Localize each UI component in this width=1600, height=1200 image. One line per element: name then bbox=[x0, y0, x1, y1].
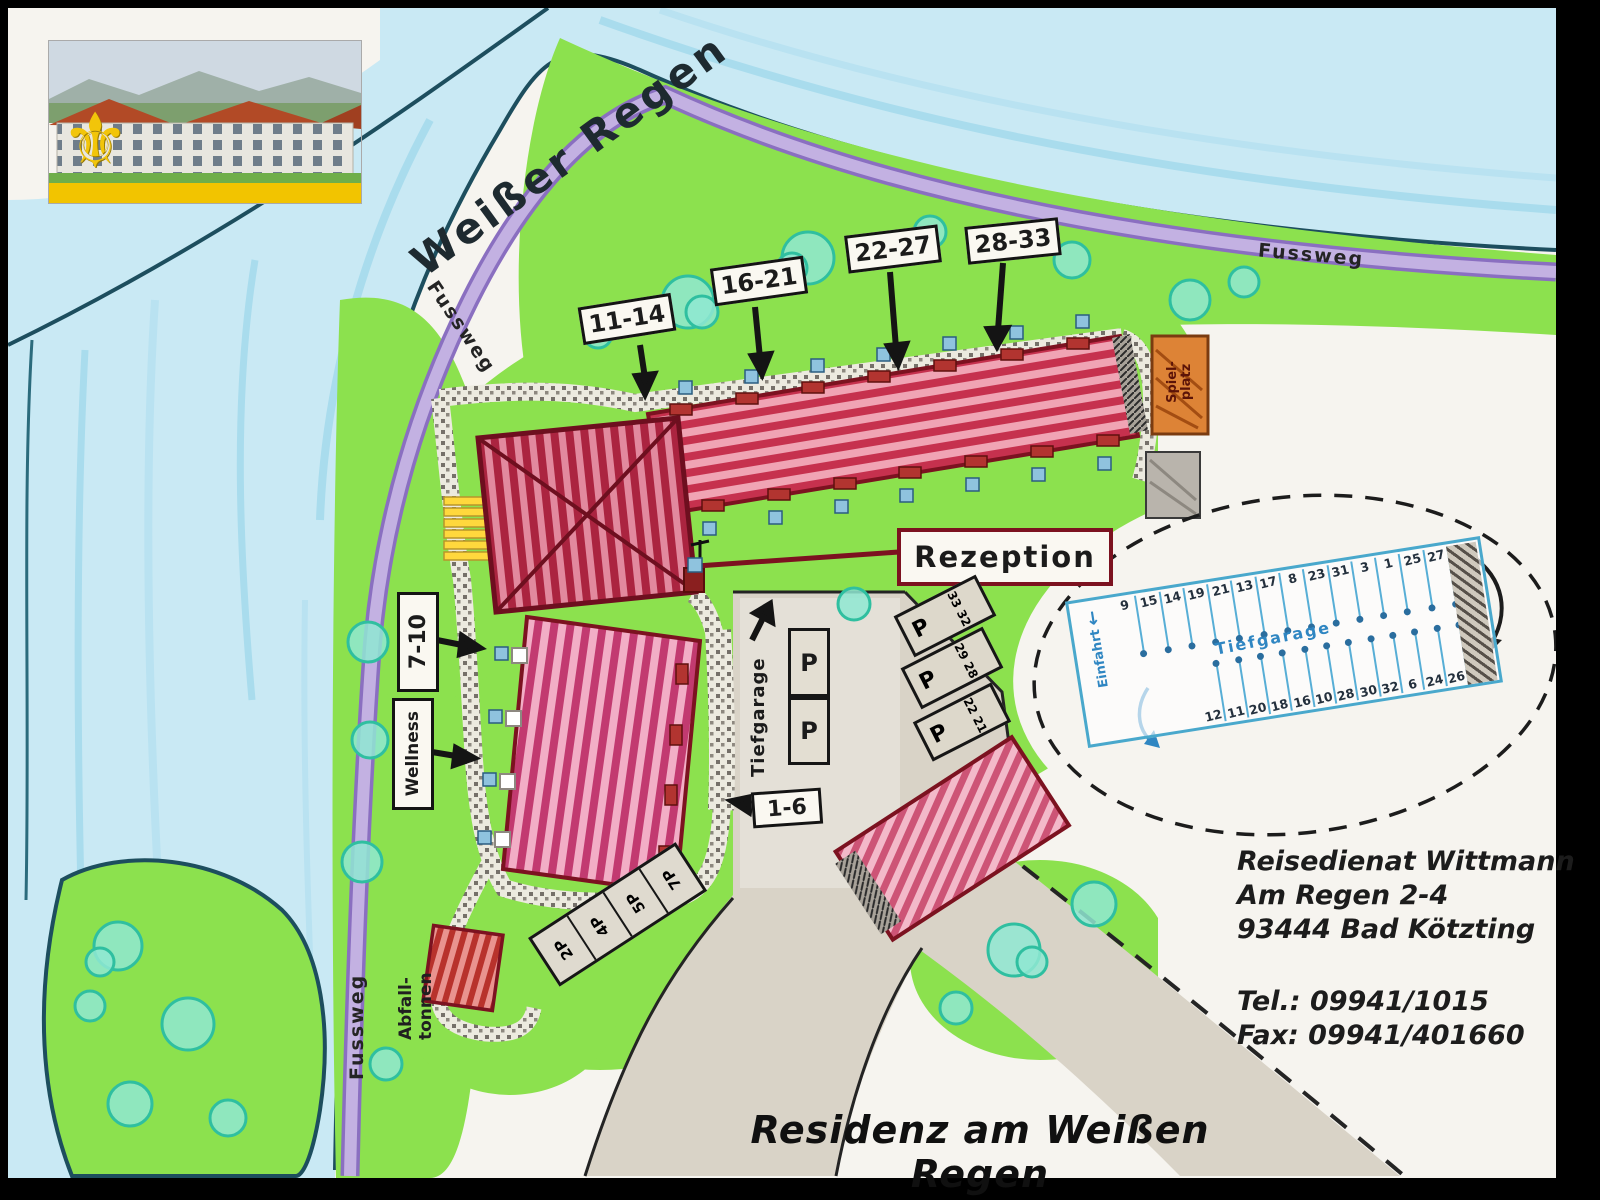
contact-fax: Fax: 09941/401660 bbox=[1237, 1019, 1575, 1053]
sign-wellness: Wellness bbox=[392, 698, 434, 810]
terrace-rect bbox=[1146, 452, 1200, 518]
outdoor-parking-1-nums: 33 32 bbox=[945, 589, 973, 628]
waste-bins-label: Abfall- tonnen bbox=[396, 922, 436, 1040]
waste-line-2: tonnen bbox=[416, 972, 436, 1040]
property-photo: ⚜ bbox=[48, 40, 362, 204]
building-main-house bbox=[478, 418, 709, 612]
garage-entry-arrow: ↓ bbox=[1084, 608, 1102, 631]
contact-city: 93444 Bad Kötzting bbox=[1237, 913, 1575, 947]
garage-entry-label: Einfahrt bbox=[1087, 628, 1111, 689]
contact-block: Reisedienat Wittmann Am Regen 2-4 93444 … bbox=[1237, 845, 1575, 1053]
playground-line-2: platz bbox=[1179, 364, 1194, 400]
site-title: Residenz am Weißen Regen bbox=[700, 1108, 1260, 1196]
contact-street: Am Regen 2-4 bbox=[1237, 879, 1575, 913]
playground-label: Spiel- platz bbox=[1166, 350, 1194, 414]
underground-garage-ramp-label: Tiefgarage bbox=[748, 632, 769, 777]
reception-sign: Rezeption bbox=[897, 528, 1113, 586]
footpath-label-left: Fussweg bbox=[346, 980, 368, 1080]
outdoor-parking-1-p: P bbox=[908, 613, 934, 643]
sign-units-7-10-text: 7-10 bbox=[406, 614, 431, 669]
contact-company: Reisedienat Wittmann bbox=[1237, 845, 1575, 879]
parking-box-lower: P bbox=[788, 697, 830, 765]
fleur-de-lis-icon: ⚜ bbox=[61, 103, 129, 179]
parking-box-upper: P bbox=[788, 628, 830, 697]
outdoor-parking-3-p: P bbox=[926, 719, 952, 749]
playground-line-1: Spiel- bbox=[1165, 361, 1180, 403]
outdoor-parking-3-nums: 22 21 bbox=[962, 696, 990, 735]
outdoor-parking-2-nums: 29 28 bbox=[952, 641, 980, 680]
site-plan-page: ⚜ Weißer Regen Fussweg Fussweg Fussweg 1… bbox=[0, 0, 1600, 1200]
contact-tel: Tel.: 09941/1015 bbox=[1237, 985, 1575, 1019]
sign-units-7-10: 7-10 bbox=[397, 592, 439, 692]
waste-line-1: Abfall- bbox=[396, 977, 416, 1040]
sign-units-1-6: 1-6 bbox=[751, 788, 823, 829]
outdoor-parking-2-p: P bbox=[915, 665, 941, 695]
sign-wellness-text: Wellness bbox=[403, 711, 423, 796]
